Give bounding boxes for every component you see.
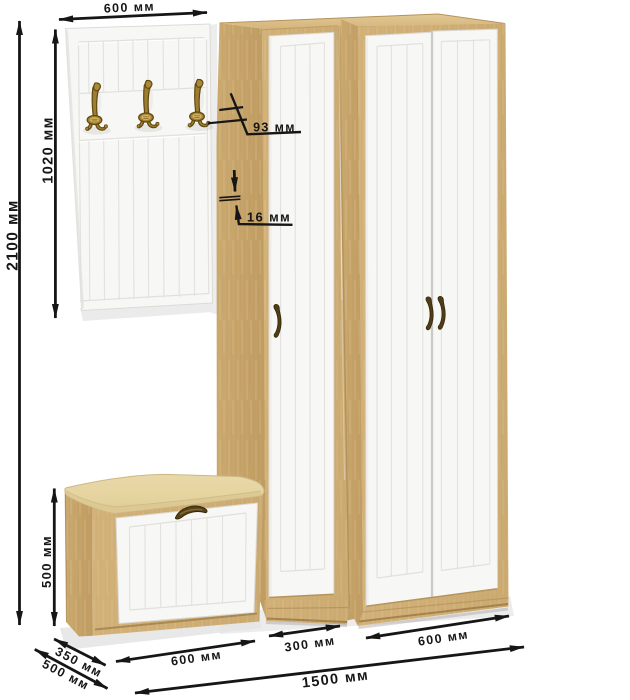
svg-text:500 мм: 500 мм (39, 535, 54, 588)
svg-text:16 мм: 16 мм (247, 210, 291, 225)
svg-text:2100 мм: 2100 мм (5, 199, 22, 271)
svg-text:600 мм: 600 мм (103, 0, 155, 16)
svg-text:93 мм: 93 мм (253, 121, 296, 135)
svg-text:1020 мм: 1020 мм (41, 116, 57, 184)
